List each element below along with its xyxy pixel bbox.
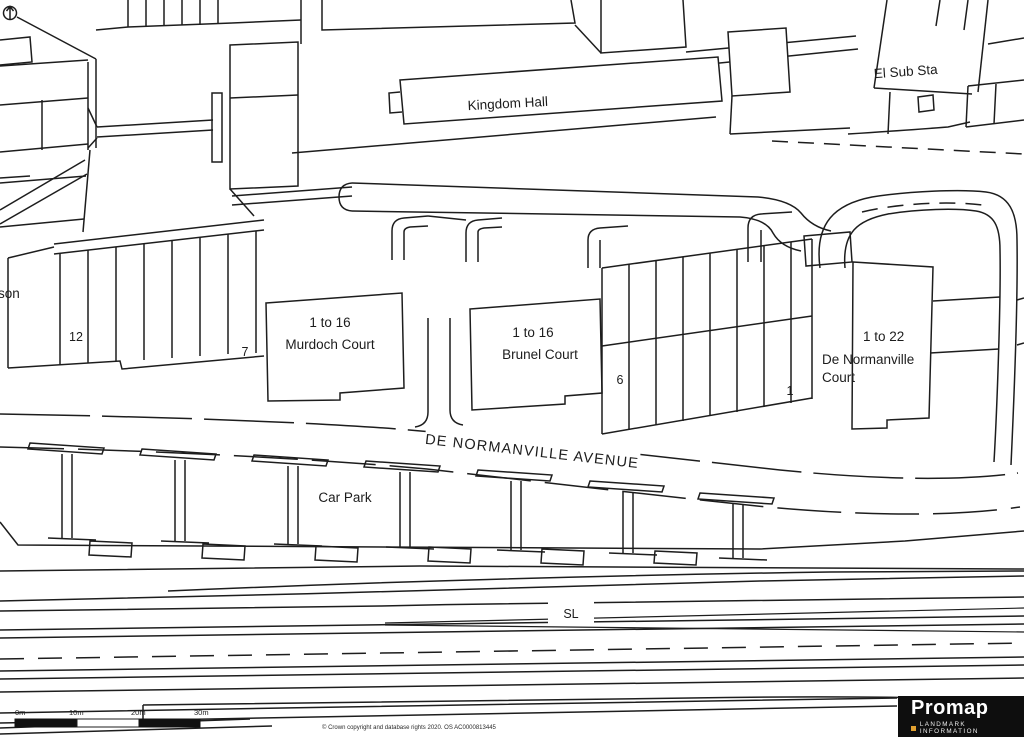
promap-logo-tagline: LANDMARK INFORMATION xyxy=(920,721,1024,735)
promap-logo-name: Promap xyxy=(911,698,1024,719)
murdoch-name-label: Murdoch Court xyxy=(285,337,375,352)
middle-plot-grid-linework xyxy=(602,239,812,434)
scale-label-10m: 10m xyxy=(69,708,84,717)
dnc-range-label: 1 to 22 xyxy=(863,329,904,344)
survey-point-icon xyxy=(4,7,17,20)
plot-6-label: 6 xyxy=(617,373,624,387)
topleft-buildings-linework xyxy=(0,0,301,232)
map-stage: 0m 10m 20m 30m El Sub Sta Kingdom Hall s… xyxy=(0,0,1024,737)
scale-label-20m: 20m xyxy=(131,708,146,717)
el-sub-sta-label: El Sub Sta xyxy=(873,62,938,81)
access-lane-linework xyxy=(232,183,831,251)
railway-linework xyxy=(0,566,1024,734)
plot-12-label: 12 xyxy=(69,330,83,344)
dnc-name-line1-label: De Normanville xyxy=(822,352,914,367)
court-yard-walls-linework xyxy=(392,212,792,268)
promap-logo-dot-icon xyxy=(911,726,916,731)
promap-logo: Promap LANDMARK INFORMATION xyxy=(898,696,1024,737)
brunel-name-label: Brunel Court xyxy=(502,347,578,362)
murdoch-range-label: 1 to 16 xyxy=(309,315,350,330)
son-partial-label: son xyxy=(0,286,20,301)
copyright-text: © Crown copyright and database rights 20… xyxy=(322,724,497,731)
map-labels: El Sub Sta Kingdom Hall son 12 7 1 to 16… xyxy=(0,62,939,731)
brunel-range-label: 1 to 16 xyxy=(512,325,553,340)
scale-label-0m: 0m xyxy=(15,708,25,717)
plot-1-label: 1 xyxy=(787,384,794,398)
lower-boundary-linework xyxy=(0,522,1024,565)
dnc-name-line2-label: Court xyxy=(822,370,855,385)
avenue-label-group: DE NORMANVILLE AVENUE xyxy=(424,427,641,473)
car-park-label: Car Park xyxy=(318,490,372,505)
left-terrace-plots-linework xyxy=(8,220,264,369)
south-plot-dividers-linework xyxy=(28,443,774,560)
map-canvas[interactable]: 0m 10m 20m 30m El Sub Sta Kingdom Hall s… xyxy=(0,0,1024,737)
scale-label-30m: 30m xyxy=(194,708,209,717)
plot-7-label: 7 xyxy=(242,345,249,359)
sl-label: SL xyxy=(563,607,578,621)
